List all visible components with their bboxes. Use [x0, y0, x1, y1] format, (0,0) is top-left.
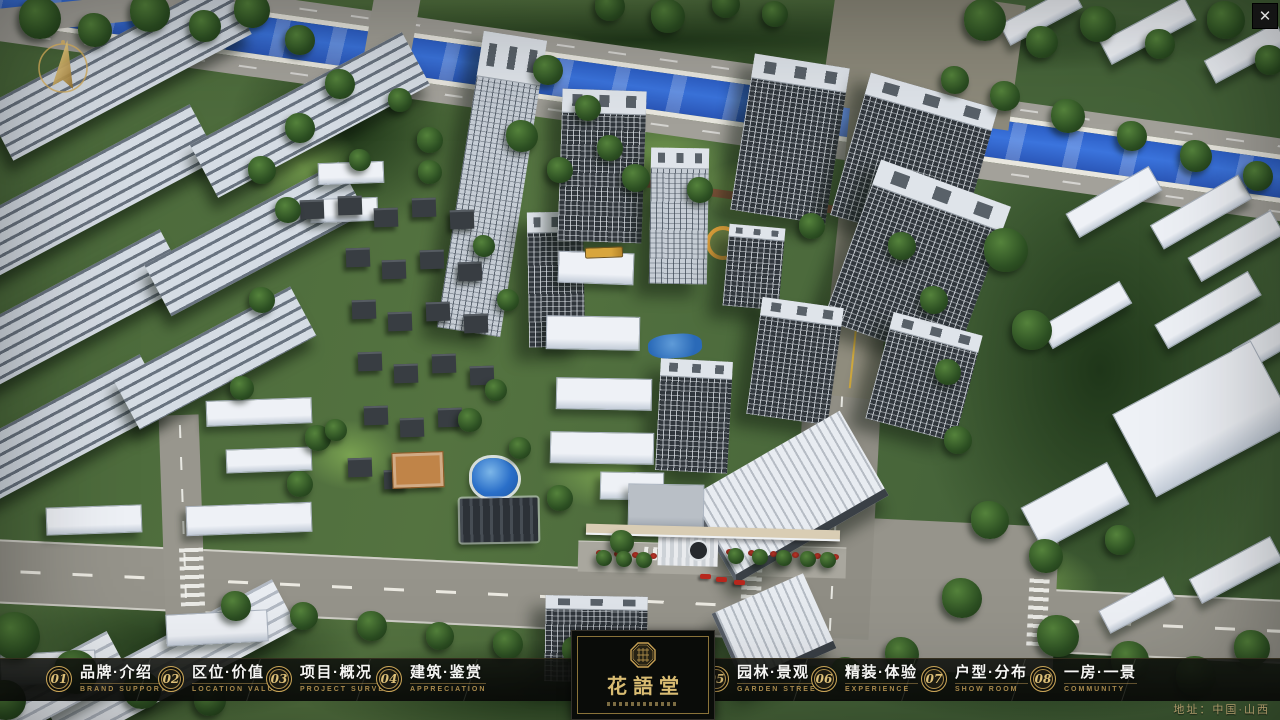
tree: [1255, 45, 1280, 75]
tree: [506, 120, 538, 152]
tree: [285, 25, 315, 55]
tree: [1029, 539, 1063, 573]
nav-label-zh: 建筑·鉴赏: [410, 665, 486, 681]
tree: [1117, 121, 1147, 151]
tree: [1037, 615, 1079, 657]
white-slab: [546, 315, 641, 351]
tree: [941, 66, 969, 94]
tree: [575, 95, 601, 121]
tree: [290, 602, 318, 630]
tree: [799, 213, 825, 239]
tree: [1012, 310, 1052, 350]
tree: [800, 551, 816, 567]
tree: [820, 552, 836, 568]
tree: [1145, 29, 1175, 59]
tree: [473, 235, 495, 257]
tree: [1243, 161, 1273, 191]
tree: [920, 286, 948, 314]
red-shrub: [792, 552, 799, 558]
render-scene: [0, 0, 1280, 720]
tree: [248, 156, 276, 184]
tree: [426, 622, 454, 650]
gate-medallion: [688, 540, 709, 561]
item-number-badge: 01: [46, 666, 72, 692]
tree: [325, 419, 347, 441]
courtyard-house: [450, 210, 475, 230]
tower: [655, 358, 733, 474]
courtyard-house: [348, 458, 373, 478]
nav-item-architecture[interactable]: 04 建筑·鉴赏 APPRECIATION: [376, 658, 486, 700]
nav-label-zh: 精装·体验: [845, 665, 918, 681]
tree: [418, 160, 442, 184]
tree: [1180, 140, 1212, 172]
address-note: 地址：中国·山西: [1173, 701, 1270, 717]
nav-item-interior[interactable]: 06 精装·体验 EXPERIENCE: [811, 658, 918, 700]
tower: [746, 297, 844, 425]
courtyard-house: [388, 312, 413, 332]
tree: [275, 197, 301, 223]
tree: [944, 426, 972, 454]
tree: [596, 550, 612, 566]
tree: [547, 157, 573, 183]
tree: [325, 69, 355, 99]
tree: [249, 287, 275, 313]
tree: [509, 437, 531, 459]
courtyard-house: [352, 300, 377, 320]
white-slab: [556, 377, 653, 411]
white-slab: [550, 431, 655, 465]
white-slab: [186, 502, 313, 536]
nav-item-floorplan[interactable]: 07 户型·分布 SHOW ROOM: [921, 658, 1028, 700]
tree: [189, 10, 221, 42]
tree: [636, 552, 652, 568]
seal-emblem-icon: [630, 642, 656, 668]
white-slab: [165, 609, 269, 646]
nav-item-location[interactable]: 02 区位·价值 LOCATION VALUE: [158, 658, 281, 700]
courtyard-house: [346, 248, 371, 268]
shuttle-bus: [585, 246, 623, 258]
tree: [687, 177, 713, 203]
tree: [417, 127, 443, 153]
courtyard-house: [412, 198, 437, 218]
item-number-badge: 02: [158, 666, 184, 692]
tree: [597, 135, 623, 161]
tree: [752, 549, 768, 565]
swimming-pool: [472, 458, 518, 498]
item-number-badge: 08: [1030, 666, 1056, 692]
clubhouse: [391, 451, 444, 489]
nav-label-en: APPRECIATION: [410, 683, 486, 693]
tree: [349, 149, 371, 171]
item-number-badge: 03: [266, 666, 292, 692]
tree: [388, 88, 412, 112]
courtyard-house: [426, 302, 451, 322]
courtyard-house: [338, 196, 363, 216]
sales-pavilion: [460, 497, 539, 542]
close-button[interactable]: ✕: [1252, 3, 1278, 29]
item-number-badge: 04: [376, 666, 402, 692]
logo-subtitle-rule: [607, 702, 679, 706]
courtyard-house: [300, 200, 325, 220]
item-number-badge: 06: [811, 666, 837, 692]
tree: [1080, 6, 1116, 42]
courtyard-house: [432, 354, 457, 374]
tree: [221, 591, 251, 621]
nav-item-views[interactable]: 08 一房·一景 COMMUNITY: [1030, 658, 1137, 700]
nav-label-zh: 一房·一景: [1064, 665, 1137, 681]
courtyard-house: [358, 352, 383, 372]
nav-label-en: COMMUNITY: [1064, 683, 1137, 693]
nav-label-en: BRAND SUPPORT: [80, 683, 167, 693]
tower: [723, 224, 786, 311]
tree: [942, 578, 982, 618]
tree: [1026, 26, 1058, 58]
landscape-pond: [647, 332, 703, 360]
logo-frame: 花語堂: [577, 636, 709, 714]
tree: [547, 485, 573, 511]
nav-label-zh: 户型·分布: [955, 665, 1028, 681]
tree: [971, 501, 1009, 539]
tree: [1105, 525, 1135, 555]
tree: [1207, 1, 1245, 39]
parked-car: [716, 577, 727, 582]
tree: [651, 0, 685, 33]
nav-item-brand[interactable]: 01 品牌·介绍 BRAND SUPPORT: [46, 658, 167, 700]
nav-item-garden[interactable]: 05 园林·景观 GARDEN STREET: [703, 658, 823, 700]
tree: [964, 0, 1006, 41]
tree: [485, 379, 507, 401]
tower: [649, 148, 709, 285]
logo-title: 花語堂: [601, 670, 685, 699]
tree: [493, 629, 523, 659]
tree: [19, 0, 61, 39]
parked-car: [700, 574, 711, 579]
nav-label-en: SHOW ROOM: [955, 683, 1028, 693]
courtyard-house: [458, 262, 483, 282]
tree: [1051, 99, 1085, 133]
tree: [622, 164, 650, 192]
tree: [935, 359, 961, 385]
courtyard-house: [364, 406, 389, 426]
tree: [616, 551, 632, 567]
parked-car: [734, 580, 745, 585]
item-number-badge: 07: [921, 666, 947, 692]
courtyard-house: [464, 314, 489, 334]
project-logo[interactable]: 花語堂: [571, 630, 715, 720]
tree: [888, 232, 916, 260]
tree: [762, 1, 788, 27]
white-slab: [206, 397, 313, 427]
courtyard-house: [400, 418, 425, 438]
tree: [533, 55, 563, 85]
tree: [990, 81, 1020, 111]
tree: [497, 289, 519, 311]
tree: [458, 408, 482, 432]
white-slab: [46, 504, 143, 535]
tree: [776, 550, 792, 566]
white-slab: [226, 447, 313, 474]
tree: [357, 611, 387, 641]
courtyard-house: [374, 208, 399, 228]
crosswalk: [179, 548, 205, 607]
tree: [984, 228, 1028, 272]
courtyard-house: [382, 260, 407, 280]
compass-icon: [34, 36, 94, 98]
courtyard-house: [420, 250, 445, 270]
nav-label-zh: 品牌·介绍: [80, 665, 167, 681]
tree: [287, 471, 313, 497]
courtyard-house: [394, 364, 419, 384]
masterplan-viewport[interactable]: ✕ 01 品牌·介绍 BRAND SUPPORT 02 区位·价值 LOCATI…: [0, 0, 1280, 720]
tree: [285, 113, 315, 143]
tree: [728, 548, 744, 564]
nav-item-project[interactable]: 03 项目·概况 PROJECT SURVEY: [266, 658, 392, 700]
tree: [230, 376, 254, 400]
nav-label-en: EXPERIENCE: [845, 683, 918, 693]
